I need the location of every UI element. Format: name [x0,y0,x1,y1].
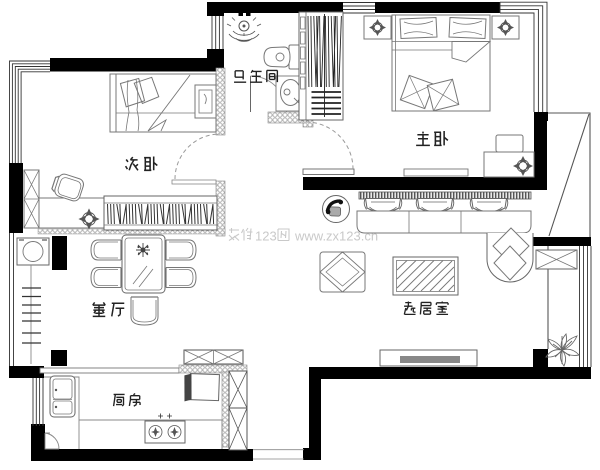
svg-text:www.zx123.cn: www.zx123.cn [294,229,378,244]
svg-text:123: 123 [255,229,277,244]
